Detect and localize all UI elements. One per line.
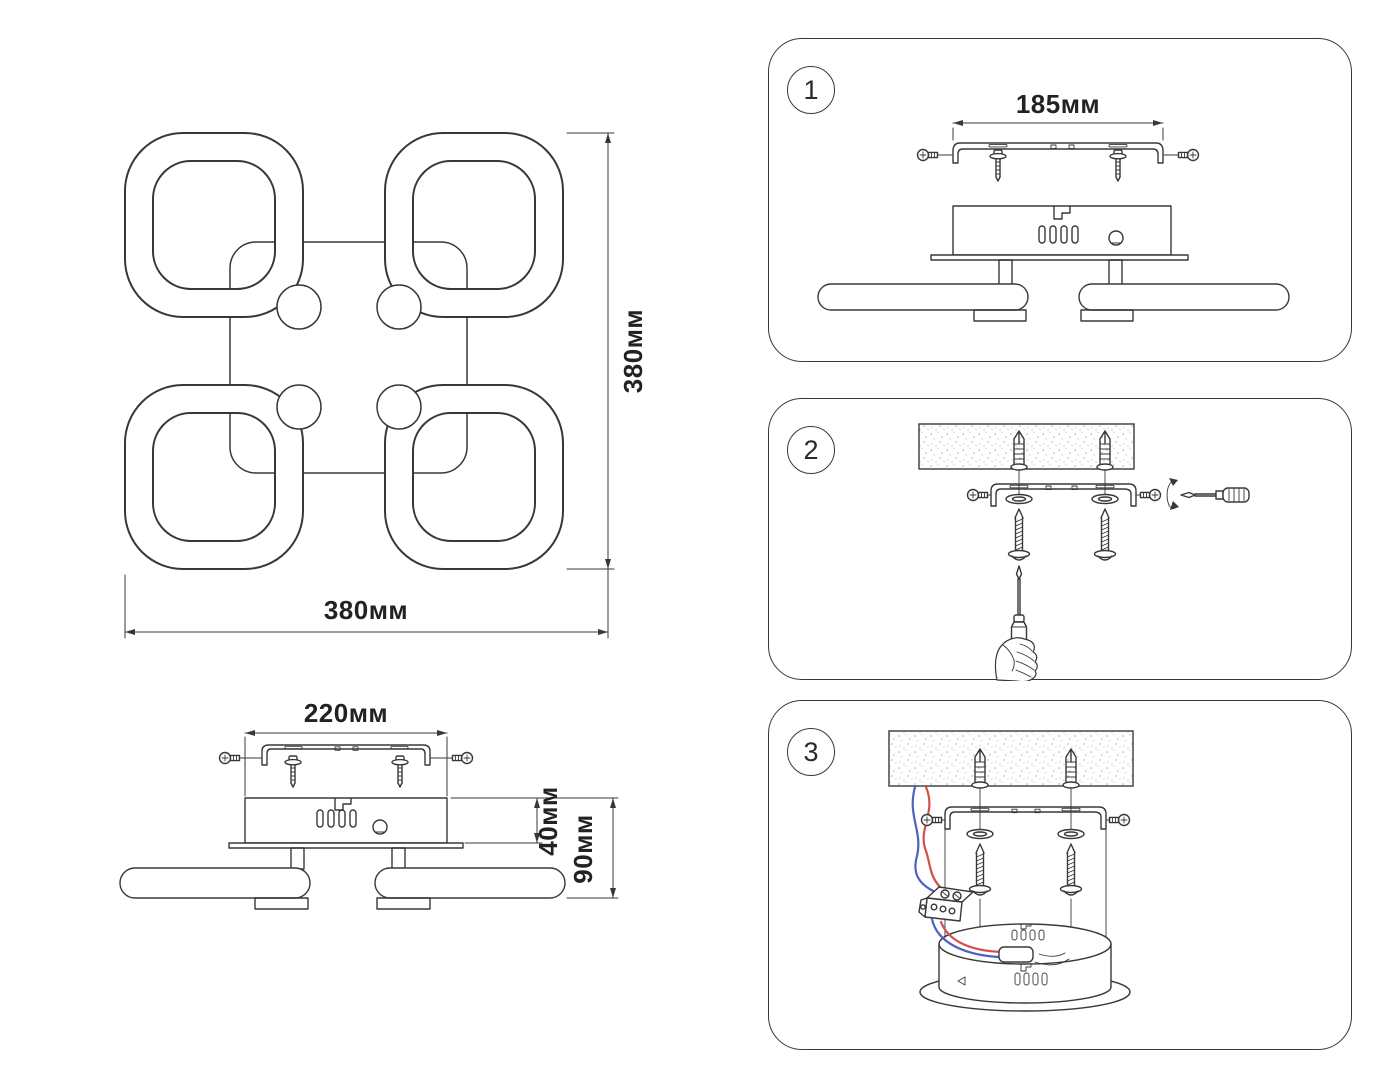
mounting-screw-icons bbox=[1009, 509, 1116, 560]
dimension-width: 380мм bbox=[125, 575, 608, 638]
bracket-screw-icons bbox=[990, 150, 1126, 181]
step-3-panel: 3 bbox=[768, 700, 1352, 1050]
installation-instruction-sheet: 380мм 380мм 220мм bbox=[0, 0, 1400, 1088]
lamp-arm-stems bbox=[999, 260, 1122, 285]
wire-live-red bbox=[924, 787, 943, 890]
dim-label-bracket: 185мм bbox=[1016, 89, 1100, 119]
terminal-block-icon bbox=[919, 887, 973, 921]
lamp-arms bbox=[120, 868, 565, 909]
lamp-side-view-drawing: 220мм bbox=[95, 688, 655, 928]
dim-label-body-height: 40мм bbox=[533, 786, 563, 855]
lamp-ring-top-left bbox=[125, 133, 303, 317]
hand-screwdriver-icon bbox=[995, 566, 1037, 681]
screwdriver-icon bbox=[1181, 488, 1249, 502]
dim-label-width: 380мм bbox=[324, 595, 408, 625]
dim-label-width: 220мм bbox=[304, 698, 388, 728]
lamp-arms bbox=[818, 284, 1289, 321]
dimension-width: 220мм bbox=[245, 698, 447, 796]
lamp-body bbox=[229, 798, 463, 848]
step-2-drawing bbox=[769, 399, 1353, 681]
side-screw-right-icon bbox=[431, 753, 473, 764]
step-1-drawing: 185мм bbox=[769, 39, 1353, 363]
lamp-body bbox=[931, 206, 1188, 260]
mounting-bracket bbox=[945, 807, 1106, 829]
side-screw-left-icon bbox=[220, 753, 262, 764]
rotation-arrow-icon bbox=[1167, 478, 1179, 510]
lamp-top-view-drawing: 380мм 380мм bbox=[95, 105, 655, 685]
bracket-hole-washers bbox=[1006, 495, 1118, 504]
step-1-panel: 1 185мм bbox=[768, 38, 1352, 362]
mounting-bracket bbox=[953, 143, 1163, 163]
side-screw-left-icon bbox=[922, 815, 946, 826]
dimension-bracket-width: 185мм bbox=[953, 89, 1163, 140]
side-screw-right-icon bbox=[1107, 815, 1130, 826]
side-screw-right-icon bbox=[1137, 490, 1161, 501]
ceiling bbox=[889, 731, 1133, 786]
ceiling bbox=[919, 424, 1134, 469]
side-screw-right-icon bbox=[1164, 150, 1199, 161]
step-3-drawing bbox=[769, 701, 1353, 1051]
lamp-arm-stems bbox=[291, 848, 405, 869]
mounting-screw-icons bbox=[970, 844, 1082, 895]
side-screw-left-icon bbox=[918, 150, 953, 161]
dim-label-total-height: 90мм bbox=[568, 814, 598, 883]
dimension-total-height: 90мм bbox=[567, 798, 618, 898]
dim-label-height: 380мм bbox=[618, 309, 648, 393]
lamp-ring-bottom-left bbox=[125, 385, 303, 569]
bracket-screw-icons bbox=[285, 756, 408, 787]
side-screw-left-icon bbox=[968, 490, 992, 501]
bracket-hole-washers bbox=[967, 830, 1084, 839]
dimension-height: 380мм bbox=[567, 133, 648, 638]
step-2-panel: 2 bbox=[768, 398, 1352, 680]
